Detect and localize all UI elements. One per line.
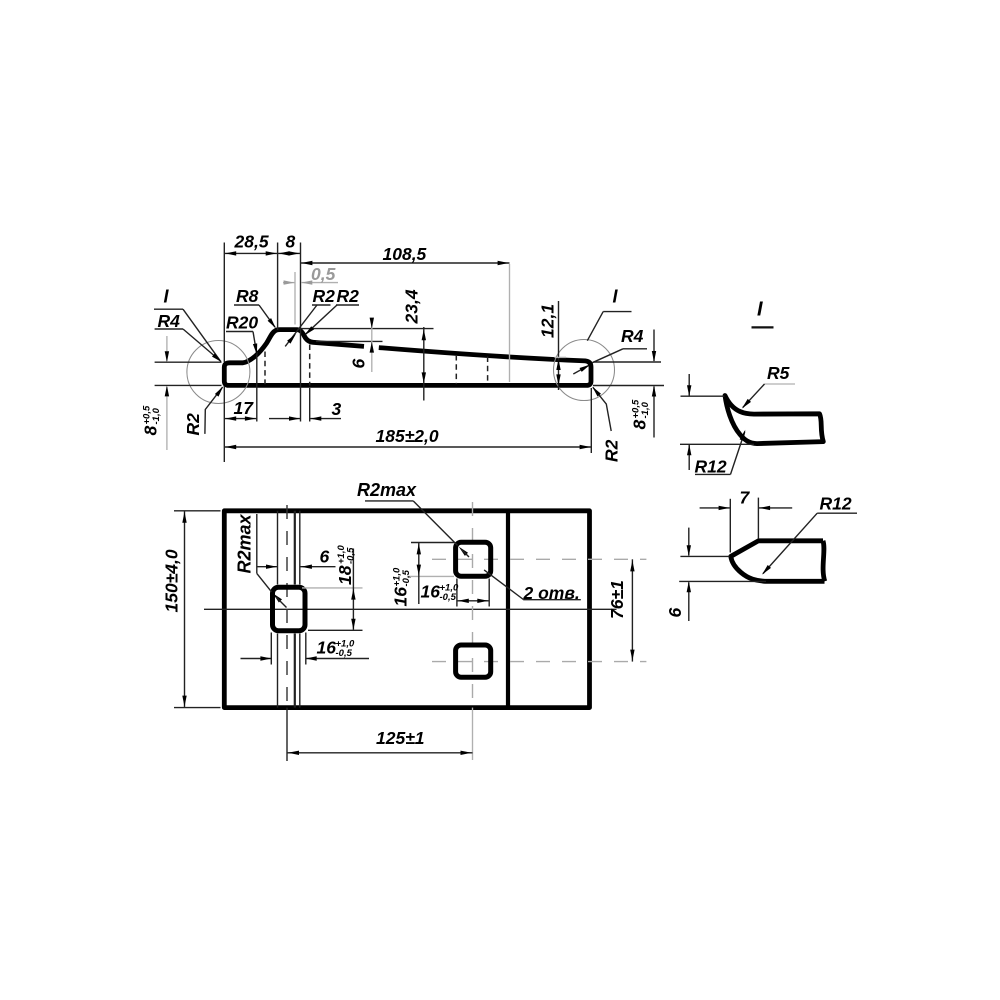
svg-text:17: 17: [234, 398, 255, 418]
svg-text:R2: R2: [337, 286, 360, 306]
svg-text:8: 8: [286, 231, 296, 251]
svg-text:0,5: 0,5: [311, 264, 336, 284]
svg-text:6: 6: [320, 546, 330, 566]
svg-text:108,5: 108,5: [383, 244, 427, 264]
svg-text:6: 6: [349, 359, 369, 369]
svg-text:R4: R4: [621, 326, 644, 346]
svg-text:23,4: 23,4: [402, 289, 422, 324]
svg-text:185±2,0: 185±2,0: [376, 426, 439, 446]
svg-text:150±4,0: 150±4,0: [162, 549, 182, 612]
svg-text:8: 8: [141, 426, 161, 436]
svg-text:-0,5: -0,5: [346, 547, 357, 564]
svg-text:-0,5: -0,5: [336, 648, 353, 659]
svg-text:16: 16: [391, 587, 411, 607]
svg-text:R5: R5: [767, 363, 790, 383]
svg-text:I: I: [757, 298, 763, 320]
svg-text:76±1: 76±1: [607, 580, 627, 619]
svg-text:R2max: R2max: [235, 513, 255, 573]
svg-text:7: 7: [740, 488, 751, 508]
svg-text:R2: R2: [313, 286, 336, 306]
svg-text:8: 8: [630, 420, 650, 430]
svg-text:6: 6: [665, 608, 685, 618]
svg-text:-1,0: -1,0: [640, 401, 651, 418]
svg-text:125±1: 125±1: [376, 728, 425, 748]
svg-text:R2max: R2max: [357, 480, 417, 500]
svg-text:R2: R2: [602, 439, 622, 462]
svg-text:-1,0: -1,0: [151, 407, 162, 424]
svg-text:R12: R12: [820, 494, 852, 514]
svg-text:R2: R2: [183, 413, 203, 436]
svg-text:28,5: 28,5: [234, 232, 269, 252]
svg-text:R20: R20: [226, 313, 258, 333]
svg-text:16: 16: [421, 582, 441, 602]
svg-text:R4: R4: [158, 311, 181, 331]
svg-text:3: 3: [332, 399, 342, 419]
svg-text:R12: R12: [695, 457, 727, 477]
svg-text:R8: R8: [236, 286, 259, 306]
svg-text:18: 18: [335, 565, 355, 585]
svg-text:12,1: 12,1: [538, 304, 558, 338]
svg-text:16: 16: [317, 638, 337, 658]
svg-text:-0,5: -0,5: [440, 592, 457, 603]
svg-text:-0,5: -0,5: [401, 569, 412, 586]
